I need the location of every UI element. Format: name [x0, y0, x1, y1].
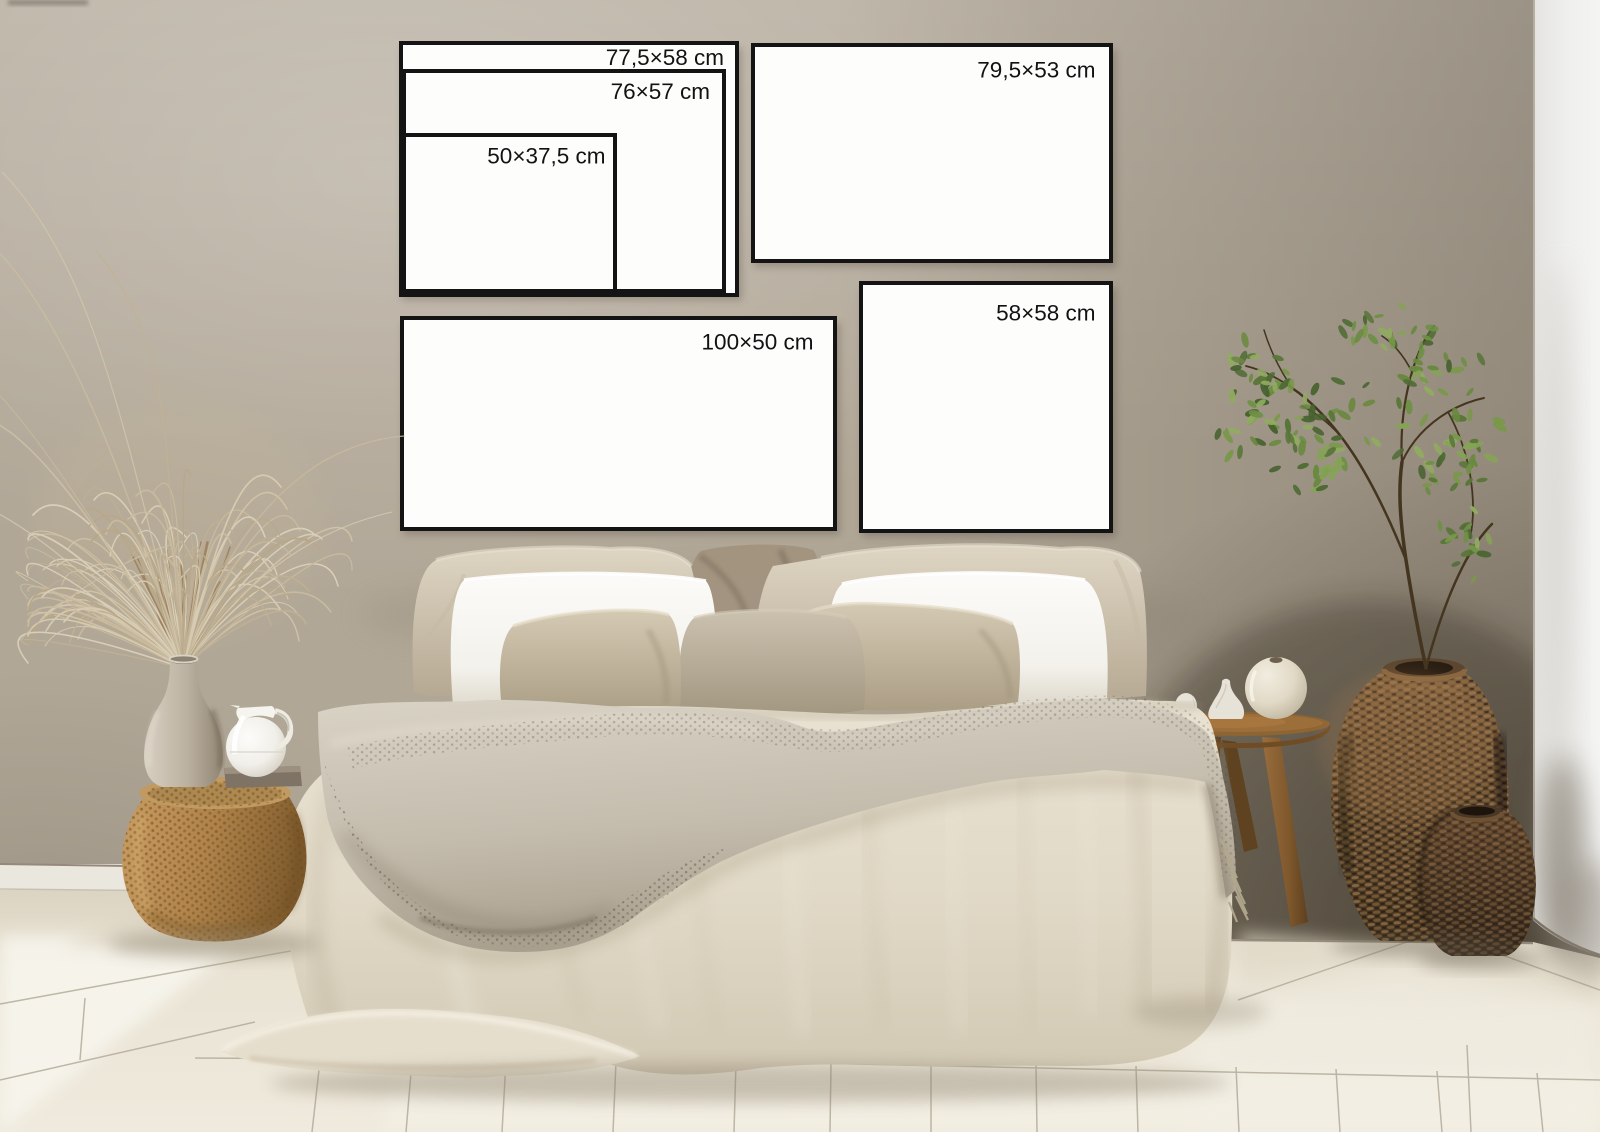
svg-text:100×50 cm: 100×50 cm: [702, 330, 814, 355]
svg-text:79,5×53 cm: 79,5×53 cm: [977, 58, 1095, 83]
svg-text:50×37,5 cm: 50×37,5 cm: [487, 144, 605, 169]
svg-text:77,5×58 cm: 77,5×58 cm: [606, 45, 724, 70]
svg-text:58×58 cm: 58×58 cm: [996, 301, 1095, 326]
svg-text:76×57 cm: 76×57 cm: [611, 79, 710, 104]
